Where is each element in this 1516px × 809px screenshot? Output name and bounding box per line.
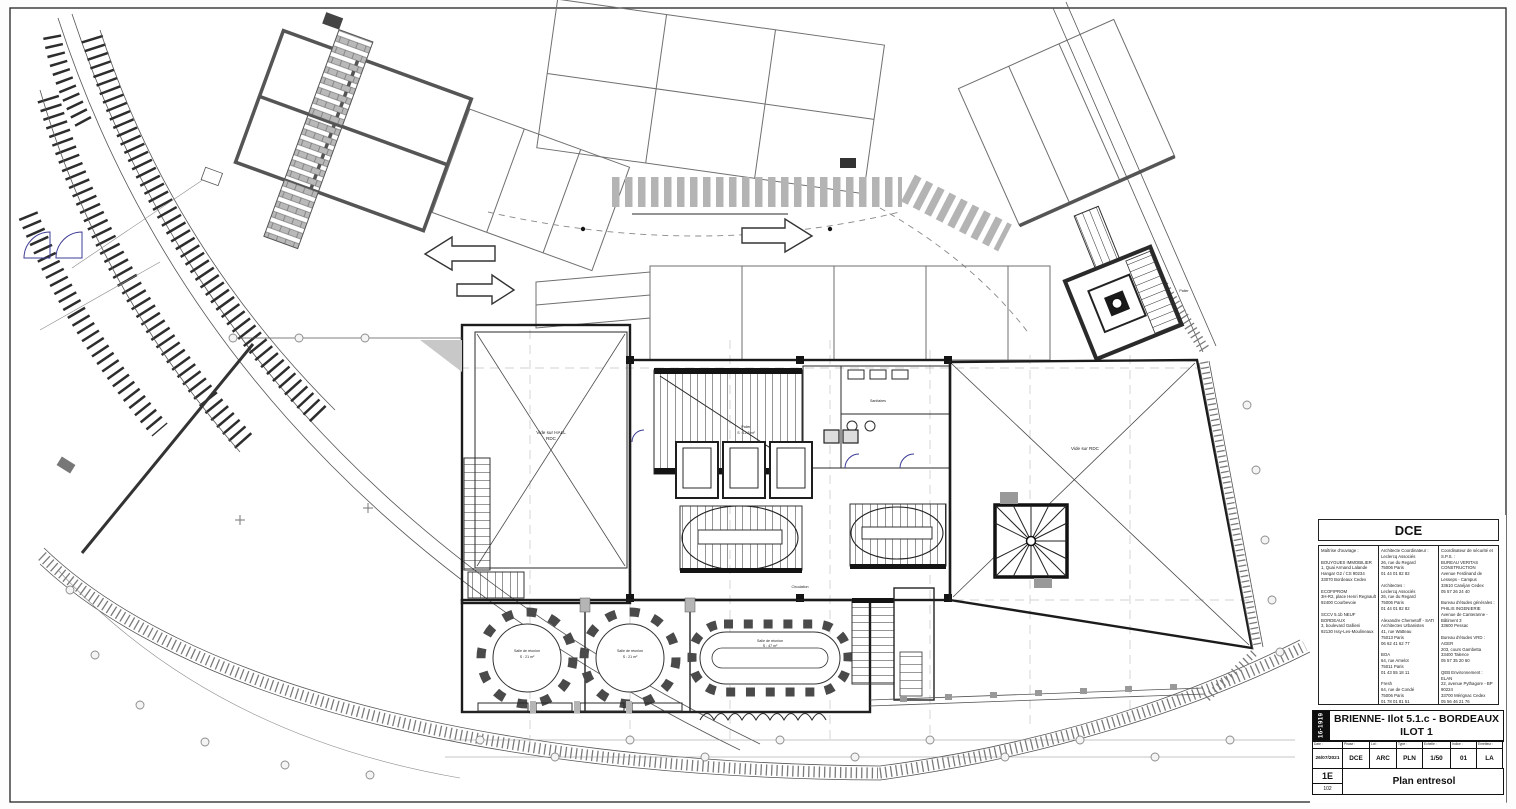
sheet-number: 102 [1313,784,1342,794]
elevator-bank [676,442,812,498]
contacts-col-architects: Architecte Coordinateur : Leclercq Assoc… [1379,546,1439,704]
sanitary-label: Sanitaires [870,399,886,403]
meta-type: Type : PLN [1397,742,1423,769]
project-title: BRIENNE- Ilot 5.1.c - BORDEAUX ILOT 1 [1330,711,1503,740]
contacts-col-engineers: Coordinateur de sécurité et S.P.S. : BUR… [1439,546,1498,704]
title-block: DCE Maîtrise d'ouvrage : BOUYGUES IMMOBI… [1310,515,1506,803]
drawing-title-row: 1E 102 Plan entresol [1312,768,1504,795]
svg-text:S : 47 m²: S : 47 m² [763,644,778,648]
svg-text:S : 21 m²: S : 21 m² [623,655,638,659]
spiral-stair [995,492,1067,588]
svg-text:S : 12.5 m²: S : 12.5 m² [737,431,755,435]
svg-text:S : 21 m²: S : 21 m² [520,655,535,659]
oval-table-room: Salle de réunion S : 47 m² [692,624,848,692]
floor-plan-drawing: Palier Vide sur HALL RDC [0,0,1516,809]
meta-date: Date : 26/07/2021 [1313,742,1343,769]
stage-label: DCE [1395,523,1422,538]
stage-box: DCE [1318,519,1499,541]
svg-text:Salle de réunion: Salle de réunion [514,649,540,653]
svg-text:Salle de réunion: Salle de réunion [757,639,783,643]
svg-text:Salle de réunion: Salle de réunion [617,649,643,653]
context-block [840,158,856,168]
project-title-line2: ILOT 1 [1400,726,1433,738]
meta-scale: Echelle : 1/50 [1423,742,1451,769]
plan-sheet: Palier Vide sur HALL RDC [0,0,1516,809]
meta-index: Indice : 01 [1451,742,1477,769]
revision-code: 1E [1313,768,1342,784]
contacts-box: Maîtrise d'ouvrage : BOUYGUES IMMOBILIER… [1318,545,1499,705]
project-code-strip: 16-1919 [1313,711,1330,740]
meta-table: Date : 26/07/2021 Phase : DCE Lot : ARC … [1312,741,1504,768]
revision-cell: 1E 102 [1313,768,1343,794]
vide-hall-label: Vide sur HALL [536,430,566,435]
meta-phase: Phase : DCE [1343,742,1370,769]
palier-label: Palier [1179,289,1189,293]
core-room-label: Palier [741,425,751,429]
stair-southwest [680,506,802,573]
stair-southeast [850,504,946,569]
svg-text:RDC: RDC [546,436,557,441]
meta-lot: Lot : ARC [1370,742,1397,769]
project-title-box: 16-1919 BRIENNE- Ilot 5.1.c - BORDEAUX I… [1312,710,1504,741]
circulation-label: Circulation [792,585,809,589]
contacts-col-owner: Maîtrise d'ouvrage : BOUYGUES IMMOBILIER… [1319,546,1379,704]
meta-issuer: Emetteur : LA [1477,742,1503,769]
project-title-line1: BRIENNE- Ilot 5.1.c - BORDEAUX [1334,713,1499,725]
drawing-title: Plan entresol [1343,768,1505,794]
vide-rdc-label: Vide sur RDC [1071,446,1100,451]
